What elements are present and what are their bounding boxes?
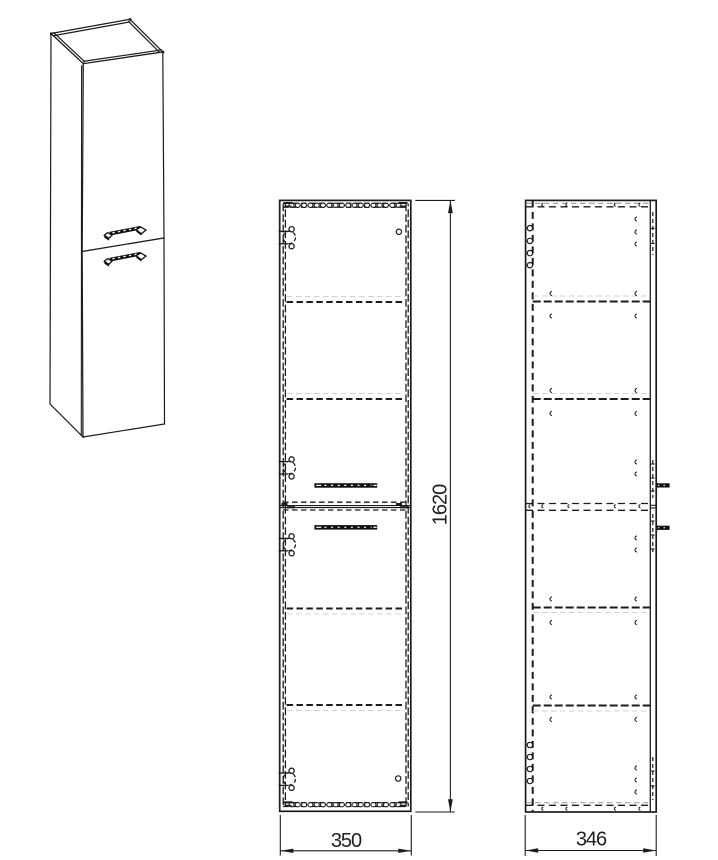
svg-text:350: 350 xyxy=(331,830,362,852)
svg-text:346: 346 xyxy=(576,829,607,851)
svg-text:1620: 1620 xyxy=(430,484,452,525)
